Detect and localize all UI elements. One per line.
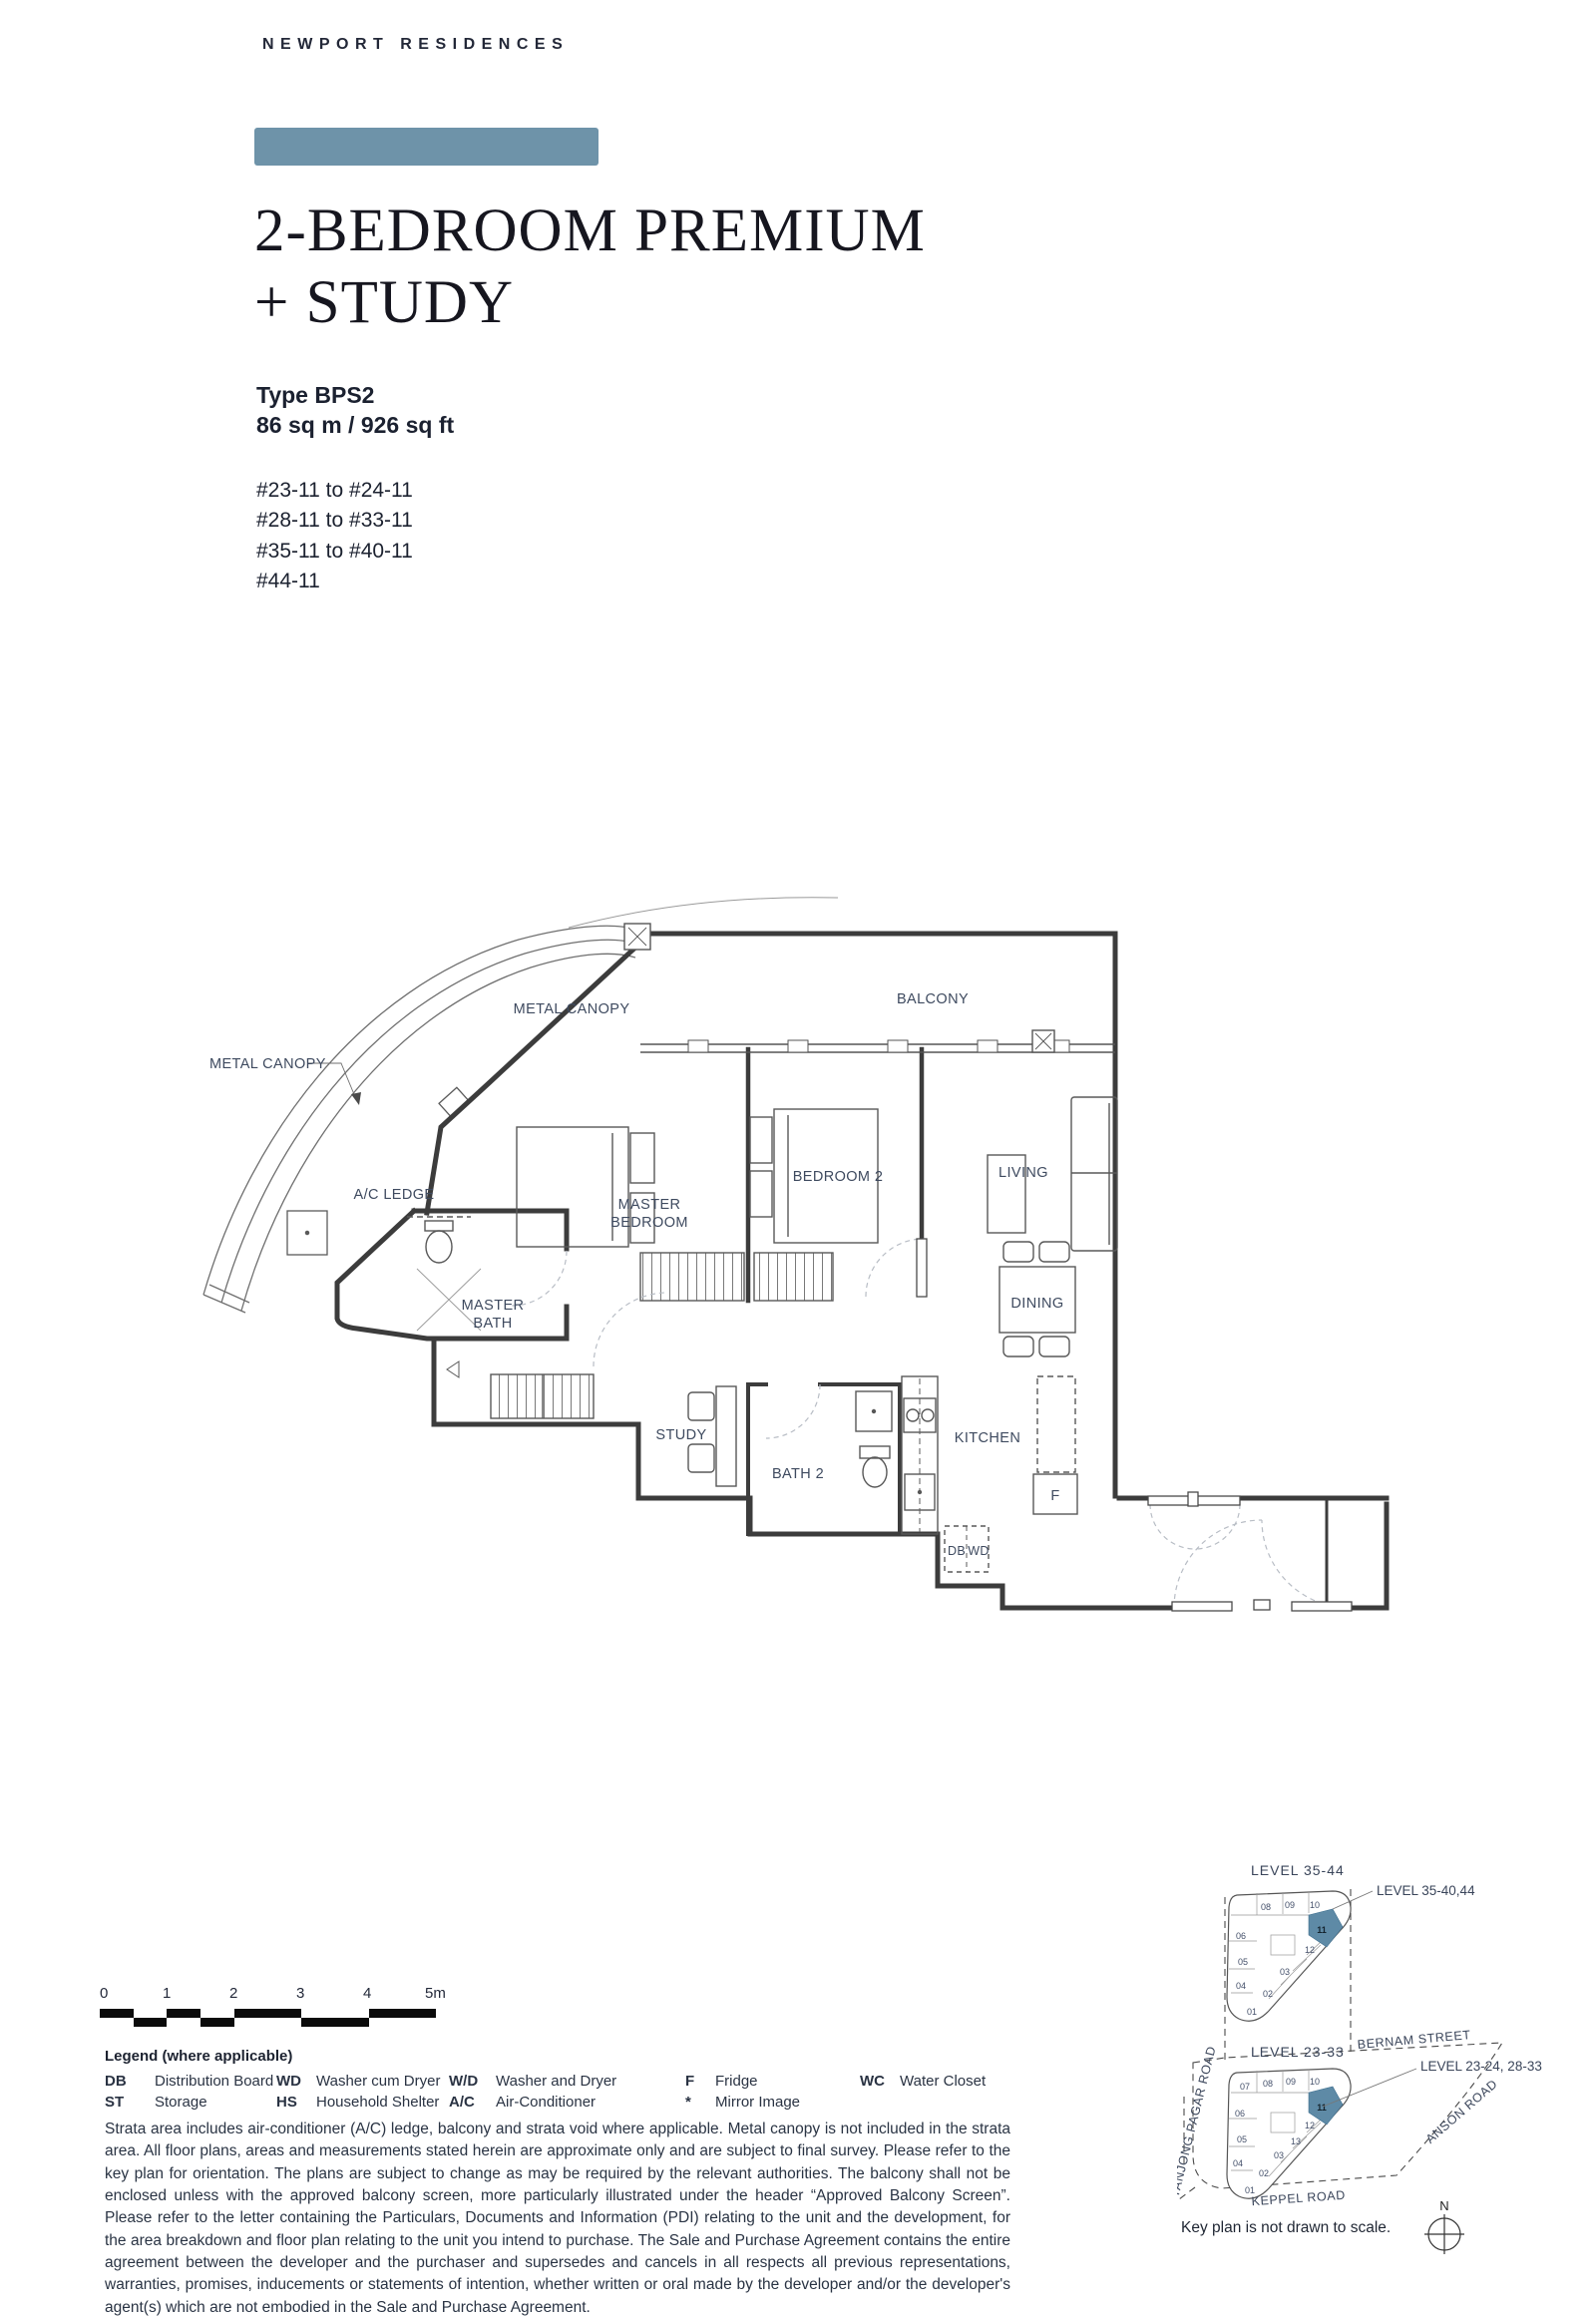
legend-desc: Air-Conditioner: [496, 2094, 596, 2111]
scale-tick: 4: [363, 1985, 371, 2002]
label-metal-canopy-top: METAL CANOPY: [514, 1001, 630, 1017]
label-dining: DINING: [1010, 1296, 1063, 1312]
accent-bar: [254, 128, 598, 166]
column-boxes: [624, 924, 1054, 1052]
legend-code: *: [685, 2094, 691, 2111]
study-desk: [716, 1386, 736, 1486]
keyplan-unit-number: 01: [1247, 2007, 1257, 2017]
legend-desc: Distribution Board: [155, 2073, 273, 2090]
unit-range: #28-11 to #33-11: [256, 506, 413, 536]
keyplan-upper-callout: LEVEL 35-40,44: [1377, 1883, 1475, 1898]
metal-canopy-arcs: [203, 898, 838, 1313]
keyplan-unit-number: 02: [1263, 1989, 1273, 1999]
label-study: STUDY: [655, 1427, 706, 1443]
label-fridge: F: [1050, 1488, 1059, 1504]
legend-desc: Washer and Dryer: [496, 2073, 616, 2090]
legend-code: A/C: [449, 2094, 475, 2111]
unit-number-list: #23-11 to #24-11 #28-11 to #33-11 #35-11…: [256, 476, 413, 597]
brand-title: NEWPORT RESIDENCES: [262, 36, 569, 54]
floor-plan-drawing: METAL CANOPY METAL CANOPY BALCONY A/C LE…: [190, 888, 1426, 1686]
label-kitchen: KITCHEN: [955, 1430, 1020, 1446]
keyplan-unit-number: 08: [1263, 2079, 1273, 2089]
scale-tick: 5m: [425, 1985, 446, 2002]
legend-code: WC: [860, 2073, 885, 2090]
wardrobe: [640, 1253, 744, 1301]
keyplan-unit-number: 02: [1259, 2168, 1269, 2178]
keyplan-note: Key plan is not drawn to scale.: [1181, 2219, 1391, 2236]
unit-range: #44-11: [256, 567, 413, 596]
label-balcony: BALCONY: [897, 991, 969, 1007]
unit-area: 86 sq m / 926 sq ft: [256, 412, 454, 439]
legend-code: HS: [276, 2094, 297, 2111]
key-plan-upper-building: 0809101112030201040506: [1227, 1891, 1351, 2021]
keyplan-unit-number: 12: [1305, 2121, 1315, 2130]
legend-code: F: [685, 2073, 694, 2090]
compass-icon: [1424, 2214, 1464, 2254]
keyplan-unit-number: 11: [1317, 2103, 1327, 2113]
legend-desc: Household Shelter: [316, 2094, 439, 2111]
ac-unit: [287, 1087, 469, 1255]
legend-desc: Water Closet: [900, 2073, 986, 2090]
keyplan-unit-number: 10: [1310, 1900, 1320, 1910]
label-metal-canopy-left: METAL CANOPY: [209, 1056, 326, 1072]
keyplan-unit-number: 05: [1238, 1957, 1248, 1967]
keyplan-unit-number: 03: [1274, 2150, 1284, 2160]
label-ac-ledge: A/C LEDGE: [354, 1187, 435, 1203]
legend-desc: Mirror Image: [715, 2094, 800, 2111]
keyplan-upper-title: LEVEL 35-44: [1251, 1862, 1345, 1878]
legend-desc: Storage: [155, 2094, 207, 2111]
keyplan-unit-number: 10: [1310, 2077, 1320, 2087]
page-title: 2-BEDROOM PREMIUM + STUDY: [254, 195, 1012, 339]
keyplan-unit-number: 08: [1261, 1902, 1271, 1912]
label-bedroom2: BEDROOM 2: [793, 1169, 884, 1185]
legend-desc: Washer cum Dryer: [316, 2073, 440, 2090]
legend-desc: Fridge: [715, 2073, 758, 2090]
kitchen-cabinet: [1037, 1376, 1075, 1472]
label-db: DB: [948, 1544, 966, 1558]
svg-text:BATH: BATH: [473, 1316, 512, 1332]
legend-heading: Legend (where applicable): [105, 2048, 292, 2065]
page-title-line1: 2-BEDROOM PREMIUM: [254, 195, 1012, 267]
keyplan-unit-number: 06: [1236, 1931, 1246, 1941]
page-title-line2: + STUDY: [254, 267, 1012, 339]
walls: [337, 934, 1387, 1608]
street-bernam: BERNAM STREET: [1357, 2028, 1471, 2052]
wardrobe: [754, 1253, 833, 1301]
scale-tick: 2: [229, 1985, 237, 2002]
compass-north-label: N: [1439, 2198, 1448, 2213]
label-master-bedroom: MASTER: [618, 1197, 681, 1213]
keyplan-unit-number: 12: [1305, 1945, 1315, 1955]
legend-code: ST: [105, 2094, 124, 2111]
label-wd: WD: [968, 1544, 989, 1558]
unit-range: #35-11 to #40-11: [256, 537, 413, 567]
sofa: [1071, 1097, 1117, 1251]
keyplan-lower-callout: LEVEL 23-24, 28-33: [1420, 2059, 1542, 2074]
key-plan: 0809101112030201040506 07080910111213030…: [1177, 1847, 1596, 2306]
keyplan-unit-number: 13: [1291, 2136, 1301, 2146]
key-plan-lower-building: 07080910111213030201040506: [1227, 2069, 1351, 2198]
scale-tick: 0: [100, 1985, 108, 2002]
label-master-bath: MASTER: [462, 1298, 525, 1314]
keyplan-unit-number: 11: [1317, 1925, 1327, 1935]
keyplan-unit-number: 05: [1237, 2134, 1247, 2144]
legend-code: WD: [276, 2073, 301, 2090]
keyplan-unit-number: 04: [1236, 1981, 1246, 1991]
keyplan-unit-number: 07: [1240, 2082, 1250, 2092]
disclaimer-text: Strata area includes air-conditioner (A/…: [105, 2119, 1010, 2319]
keyplan-unit-number: 04: [1233, 2158, 1243, 2168]
scale-bar: 0 1 2 3 4 5m: [100, 1985, 444, 2035]
keyplan-unit-number: 03: [1280, 1967, 1290, 1977]
unit-type: Type BPS2: [256, 382, 374, 409]
label-bath2: BATH 2: [772, 1466, 824, 1482]
scale-tick: 1: [163, 1985, 171, 2002]
floor-plan-page: { "brand": "NEWPORT RESIDENCES", "header…: [0, 0, 1596, 2299]
keyplan-unit-number: 09: [1285, 1900, 1295, 1910]
keyplan-unit-number: 09: [1286, 2077, 1296, 2087]
svg-text:BEDROOM: BEDROOM: [610, 1215, 688, 1231]
street-anson: ANSON ROAD: [1423, 2077, 1500, 2146]
label-living: LIVING: [998, 1165, 1048, 1181]
keyplan-lower-title: LEVEL 23-33: [1251, 2044, 1345, 2060]
legend-code: W/D: [449, 2073, 478, 2090]
scale-tick: 3: [296, 1985, 304, 2002]
unit-range: #23-11 to #24-11: [256, 476, 413, 506]
legend-code: DB: [105, 2073, 127, 2090]
keyplan-unit-number: 06: [1235, 2109, 1245, 2119]
